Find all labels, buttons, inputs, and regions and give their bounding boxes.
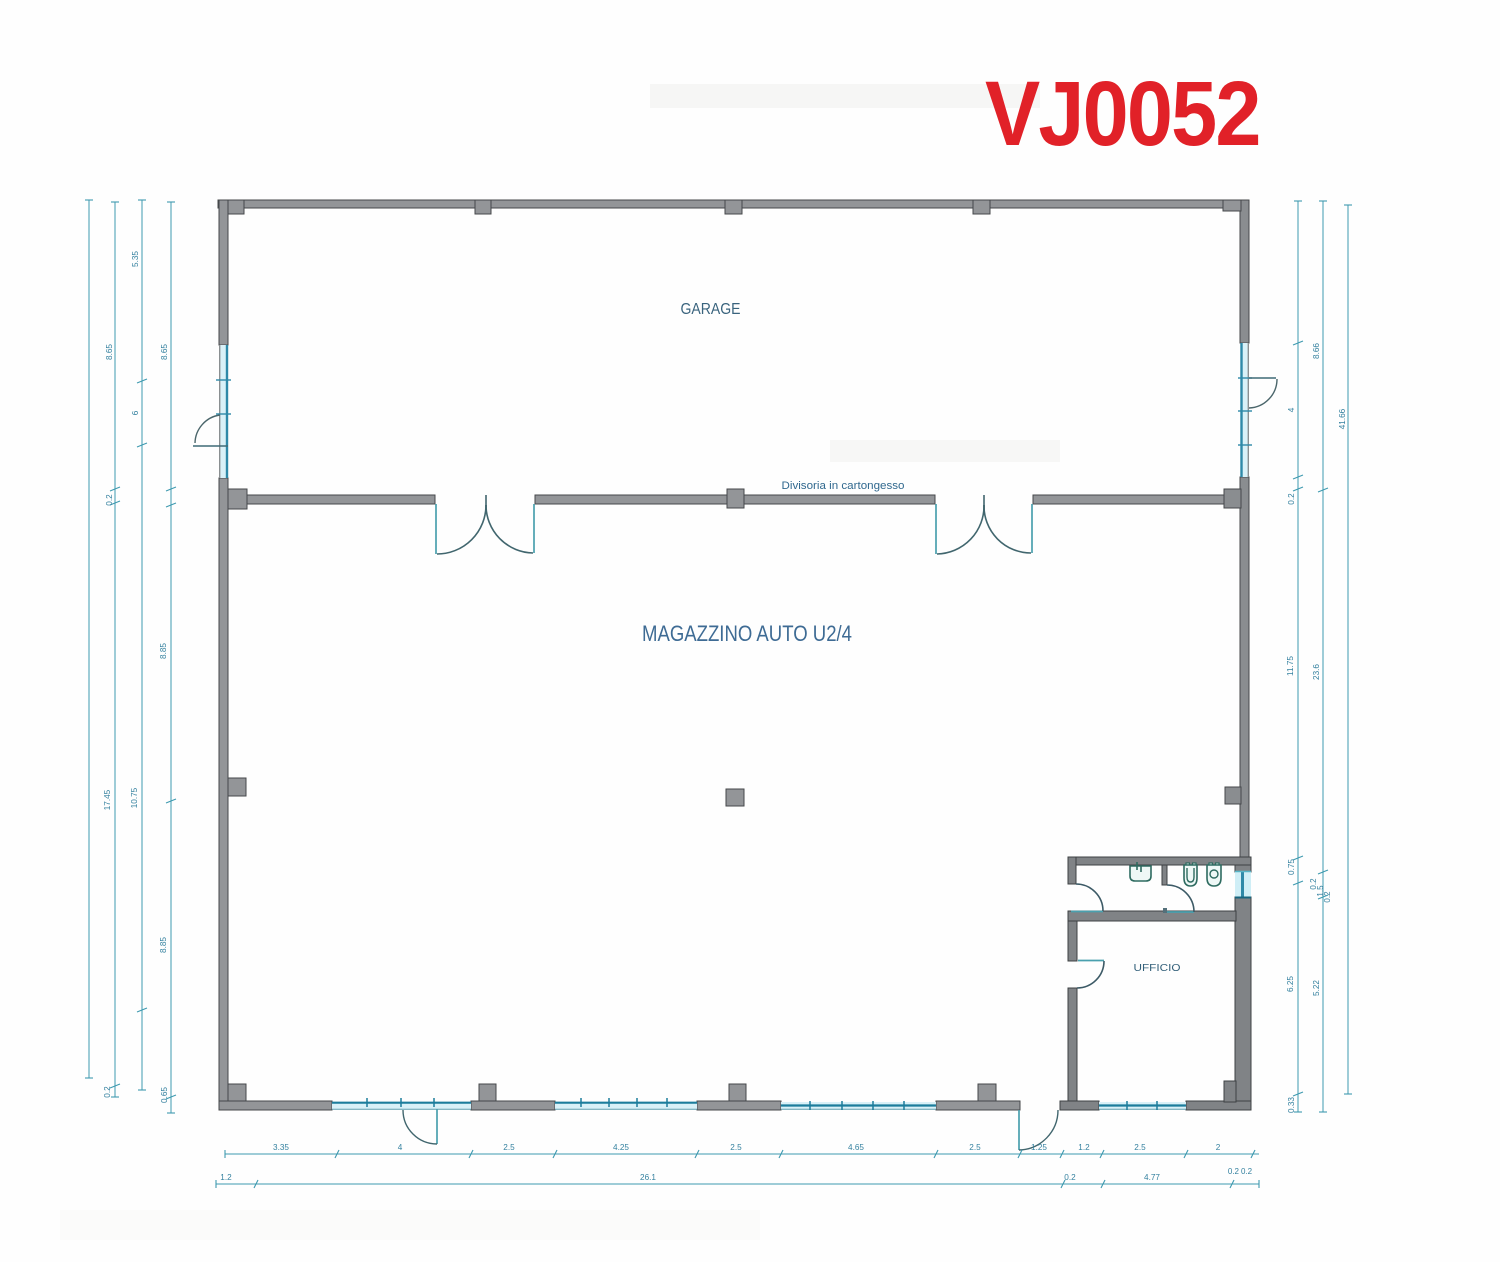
svg-text:1.2: 1.2 bbox=[1078, 1143, 1090, 1152]
svg-text:0.2: 0.2 bbox=[1064, 1173, 1076, 1182]
svg-text:41.66: 41.66 bbox=[1338, 408, 1347, 429]
svg-text:2.5: 2.5 bbox=[730, 1143, 742, 1152]
svg-text:MAGAZZINO AUTO U2/4: MAGAZZINO AUTO U2/4 bbox=[642, 621, 852, 646]
svg-text:10.75: 10.75 bbox=[130, 787, 139, 808]
svg-text:0.2: 0.2 bbox=[103, 1086, 112, 1098]
svg-text:8.66: 8.66 bbox=[1312, 343, 1321, 359]
svg-text:0.2: 0.2 bbox=[1323, 891, 1332, 903]
svg-text:5.35: 5.35 bbox=[131, 251, 140, 267]
svg-text:0.2: 0.2 bbox=[1287, 493, 1296, 505]
svg-text:5.22: 5.22 bbox=[1312, 980, 1321, 996]
svg-text:6: 6 bbox=[131, 410, 140, 415]
svg-text:8.85: 8.85 bbox=[159, 643, 168, 659]
svg-text:2.5: 2.5 bbox=[969, 1143, 981, 1152]
svg-text:17.45: 17.45 bbox=[103, 789, 112, 810]
svg-text:0.2: 0.2 bbox=[105, 494, 114, 506]
svg-text:UFFICIO: UFFICIO bbox=[1134, 962, 1181, 974]
svg-text:6.25: 6.25 bbox=[1286, 976, 1295, 992]
svg-text:0.2 0.2: 0.2 0.2 bbox=[1228, 1167, 1253, 1176]
svg-text:3.35: 3.35 bbox=[273, 1143, 289, 1152]
svg-text:4.65: 4.65 bbox=[848, 1143, 864, 1152]
svg-text:4: 4 bbox=[398, 1143, 403, 1152]
svg-text:11.75: 11.75 bbox=[1286, 656, 1295, 676]
svg-text:0.75: 0.75 bbox=[1287, 859, 1296, 875]
svg-text:8.65: 8.65 bbox=[105, 344, 114, 360]
svg-text:GARAGE: GARAGE bbox=[681, 301, 741, 318]
svg-text:26.1: 26.1 bbox=[640, 1173, 656, 1182]
svg-text:8.65: 8.65 bbox=[160, 344, 169, 360]
svg-text:1.2: 1.2 bbox=[220, 1173, 232, 1182]
svg-text:0.33: 0.33 bbox=[1287, 1097, 1296, 1113]
svg-text:0.65: 0.65 bbox=[160, 1087, 169, 1103]
svg-text:2.5: 2.5 bbox=[503, 1143, 515, 1152]
svg-text:4.77: 4.77 bbox=[1144, 1173, 1160, 1182]
svg-text:8.85: 8.85 bbox=[159, 937, 168, 953]
svg-text:2: 2 bbox=[1216, 1143, 1221, 1152]
svg-text:Divisoria in cartongesso: Divisoria in cartongesso bbox=[782, 480, 905, 492]
svg-text:4: 4 bbox=[1287, 407, 1296, 412]
svg-text:1.25: 1.25 bbox=[1031, 1143, 1047, 1152]
svg-text:4.25: 4.25 bbox=[613, 1143, 629, 1152]
svg-text:23.6: 23.6 bbox=[1312, 664, 1321, 680]
svg-text:2.5: 2.5 bbox=[1134, 1143, 1146, 1152]
